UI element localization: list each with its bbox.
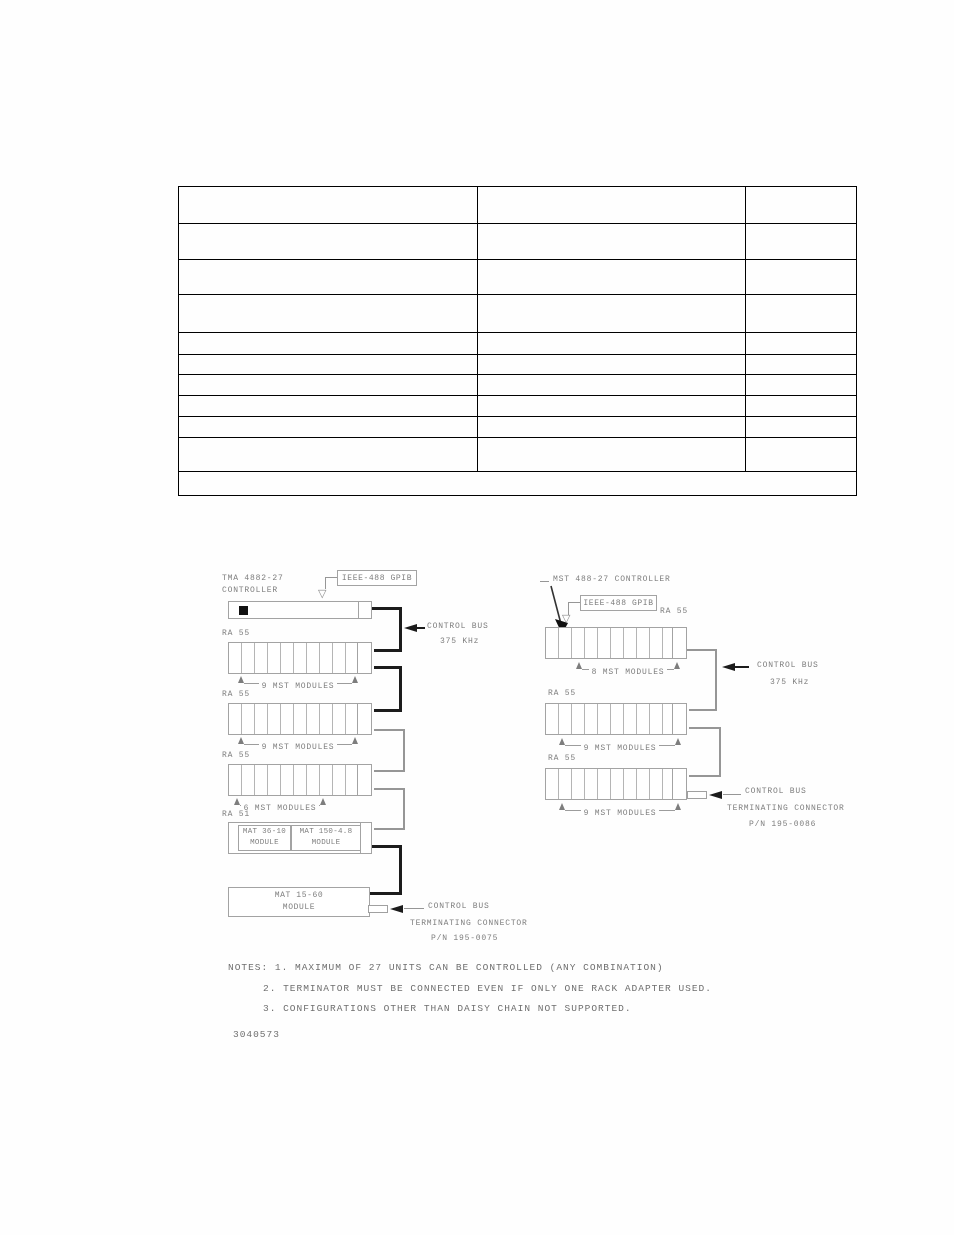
- table-cell: [179, 472, 857, 496]
- table-cell: [746, 187, 857, 224]
- rack-adapter-ra55: [545, 703, 687, 735]
- up-arrow-icon: [352, 737, 358, 744]
- control-bus-segment: [687, 649, 717, 651]
- control-bus-segment: [689, 727, 721, 729]
- table-cell: [478, 295, 746, 333]
- left-rack1-modules-callout: 9 MST MODULES: [238, 676, 358, 690]
- control-bus-segment: [374, 649, 402, 652]
- left-arrow-icon: [722, 663, 735, 671]
- table-cell: [179, 333, 478, 355]
- table-cell: [746, 333, 857, 355]
- left-rack3-name: RA 55: [222, 751, 250, 761]
- left-bus-label-2: 375 KHz: [440, 637, 479, 647]
- right-gpib-callout-box: IEEE-488 GPIB: [580, 595, 657, 611]
- control-bus-segment: [374, 788, 405, 790]
- left-terminator-line3: P/N 195-0075: [431, 934, 498, 944]
- controller-indicator-square: [239, 606, 248, 615]
- modules-label: 9 MST MODULES: [581, 744, 660, 753]
- left-gpib-leader-line: [325, 577, 337, 578]
- control-bus-segment: [403, 788, 405, 830]
- right-terminator-line1: CONTROL BUS: [745, 787, 807, 797]
- note-line-3: 3. CONFIGURATIONS OTHER THAN DAISY CHAIN…: [263, 1003, 632, 1014]
- terminating-connector: [687, 791, 707, 799]
- right-rack2-name: RA 55: [548, 689, 576, 699]
- control-bus-segment: [374, 770, 405, 772]
- left-arrow-icon: [404, 624, 417, 632]
- table-cell: [179, 295, 478, 333]
- modules-label: 9 MST MODULES: [581, 809, 660, 818]
- table-cell: [746, 375, 857, 396]
- note-line-1: NOTES: 1. MAXIMUM OF 27 UNITS CAN BE CON…: [228, 962, 664, 973]
- left-gpib-callout-box: IEEE-488 GPIB: [337, 570, 417, 586]
- rack-adapter-ra55: [228, 703, 372, 735]
- rack-adapter-ra55: [228, 642, 372, 674]
- table-cell: [179, 375, 478, 396]
- table-row: [179, 396, 857, 417]
- bracket-line: [582, 669, 589, 670]
- table-cell: [478, 417, 746, 438]
- table-row: [179, 417, 857, 438]
- left-controller-box: [228, 601, 372, 619]
- table-cell: [179, 396, 478, 417]
- table-footer-row: [179, 472, 857, 496]
- control-bus-segment: [403, 729, 405, 772]
- bracket-line: [244, 683, 259, 684]
- figure-number: 3040573: [233, 1029, 280, 1040]
- bracket-line: [565, 810, 581, 811]
- table-row: [179, 438, 857, 472]
- control-bus-segment: [374, 828, 405, 830]
- table-cell: [179, 224, 478, 260]
- module-word: MODULE: [250, 838, 279, 849]
- control-bus-segment: [374, 729, 405, 731]
- rack-endcap: [672, 769, 686, 799]
- bracket-line: [659, 745, 675, 746]
- modules-label: 9 MST MODULES: [259, 743, 338, 752]
- left-terminator-line1: CONTROL BUS: [428, 902, 490, 912]
- table-cell: [478, 260, 746, 295]
- control-bus-segment: [372, 607, 402, 610]
- rack-endcap-line: [360, 823, 361, 853]
- table-cell: [478, 438, 746, 472]
- table-cell: [746, 295, 857, 333]
- up-arrow-icon: [675, 738, 681, 745]
- control-bus-segment: [374, 666, 402, 669]
- controller-divider: [358, 602, 359, 618]
- left-bus-label-1: CONTROL BUS: [427, 622, 489, 632]
- table-cell: [478, 333, 746, 355]
- rack-adapter-ra51: MAT 36-10 MODULE MAT 150-4.8 MODULE: [228, 822, 372, 854]
- control-bus-segment: [399, 607, 402, 652]
- callout-dash: [540, 581, 549, 582]
- rack-adapter-ra55: [228, 764, 372, 796]
- table-cell: [478, 224, 746, 260]
- control-bus-segment: [370, 892, 402, 895]
- module-name: MAT 150-4.8: [300, 827, 353, 838]
- table-row: [179, 295, 857, 333]
- down-open-arrow-icon: ▽: [562, 613, 570, 624]
- module-name: MAT 15-60: [275, 890, 324, 902]
- left-controller-label-line1: TMA 4882-27: [222, 574, 284, 584]
- right-gpib-leader-line: [568, 602, 580, 603]
- table-cell: [746, 260, 857, 295]
- table-cell: [478, 396, 746, 417]
- left-rack2-name: RA 55: [222, 690, 250, 700]
- mat-150-4-8-module: MAT 150-4.8 MODULE: [291, 825, 361, 851]
- left-gpib-label: IEEE-488 GPIB: [342, 574, 412, 583]
- up-arrow-icon: [675, 803, 681, 810]
- rack-endcap: [357, 765, 371, 795]
- table-cell: [746, 417, 857, 438]
- callout-dash: [723, 794, 741, 795]
- table-row: [179, 375, 857, 396]
- rack-endcap: [357, 643, 371, 673]
- right-rack3-name: RA 55: [548, 754, 576, 764]
- control-bus-segment: [689, 775, 721, 777]
- right-bus-label-1: CONTROL BUS: [757, 661, 819, 671]
- mat-15-60-module-box: MAT 15-60 MODULE: [228, 887, 370, 917]
- down-open-arrow-icon: ▽: [318, 588, 326, 599]
- module-word: MODULE: [283, 902, 315, 914]
- table-row: [179, 224, 857, 260]
- table-grid: [178, 186, 857, 496]
- table-row: [179, 333, 857, 355]
- up-arrow-icon: [320, 798, 326, 805]
- table-cell: [746, 438, 857, 472]
- bracket-line: [244, 744, 259, 745]
- table-cell: [179, 260, 478, 295]
- callout-dash: [735, 666, 749, 668]
- rack-adapter-ra55: [545, 768, 687, 800]
- bracket-line: [565, 745, 581, 746]
- table-cell: [179, 417, 478, 438]
- table-cell: [179, 355, 478, 375]
- rack-adapter-ra55: [545, 627, 687, 659]
- modules-label: 9 MST MODULES: [259, 682, 338, 691]
- right-bus-label-2: 375 KHz: [770, 678, 809, 688]
- spec-table: [178, 186, 857, 496]
- callout-dash: [404, 908, 424, 909]
- left-controller-label-line2: CONTROLLER: [222, 586, 278, 596]
- up-arrow-icon: [352, 676, 358, 683]
- rack-endcap: [672, 704, 686, 734]
- left-terminator-line2: TERMINATING CONNECTOR: [410, 919, 528, 929]
- control-bus-segment: [719, 727, 721, 777]
- table-cell: [746, 355, 857, 375]
- table-row: [179, 260, 857, 295]
- rack-endcap: [357, 704, 371, 734]
- scanned-manual-page: TMA 4882-27 CONTROLLER IEEE-488 GPIB ▽ R…: [0, 0, 954, 1235]
- modules-label: 6 MST MODULES: [241, 804, 320, 813]
- left-arrow-icon: [709, 791, 722, 799]
- module-word: MODULE: [312, 838, 341, 849]
- control-bus-segment: [372, 845, 402, 848]
- table-cell: [478, 187, 746, 224]
- right-terminator-line2: TERMINATING CONNECTOR: [727, 804, 845, 814]
- left-rack2-modules-callout: 9 MST MODULES: [238, 737, 358, 751]
- table-cell: [478, 355, 746, 375]
- control-bus-segment: [374, 709, 402, 712]
- bracket-line: [659, 810, 675, 811]
- module-name: MAT 36-10: [243, 827, 286, 838]
- table-cell: [478, 375, 746, 396]
- right-terminator-line3: P/N 195-0086: [749, 820, 816, 830]
- callout-dash: [417, 627, 425, 629]
- bracket-line: [337, 683, 352, 684]
- bracket-line: [337, 744, 352, 745]
- bracket-line: [667, 669, 674, 670]
- right-rack2-modules-callout: 9 MST MODULES: [559, 738, 681, 752]
- modules-label: 8 MST MODULES: [589, 668, 668, 677]
- control-bus-segment: [399, 845, 402, 895]
- table-row: [179, 355, 857, 375]
- table-cell: [179, 187, 478, 224]
- right-rack1-modules-callout: 8 MST MODULES: [576, 662, 680, 676]
- left-rack4-name: RA 51: [222, 810, 250, 820]
- rack-endcap: [672, 628, 686, 658]
- left-arrow-icon: [390, 905, 403, 913]
- right-rack1-name: RA 55: [660, 607, 688, 617]
- right-rack3-modules-callout: 9 MST MODULES: [559, 803, 681, 817]
- table-cell: [746, 224, 857, 260]
- table-row: [179, 187, 857, 224]
- control-bus-segment: [715, 649, 717, 711]
- terminating-connector: [368, 905, 388, 913]
- control-bus-segment: [399, 666, 402, 712]
- mat-36-10-module: MAT 36-10 MODULE: [238, 825, 291, 851]
- right-gpib-label: IEEE-488 GPIB: [583, 599, 653, 608]
- control-bus-segment: [689, 709, 717, 711]
- table-cell: [746, 396, 857, 417]
- table-cell: [179, 438, 478, 472]
- note-line-2: 2. TERMINATOR MUST BE CONNECTED EVEN IF …: [263, 983, 712, 994]
- up-arrow-icon: [674, 662, 680, 669]
- left-rack1-name: RA 55: [222, 629, 250, 639]
